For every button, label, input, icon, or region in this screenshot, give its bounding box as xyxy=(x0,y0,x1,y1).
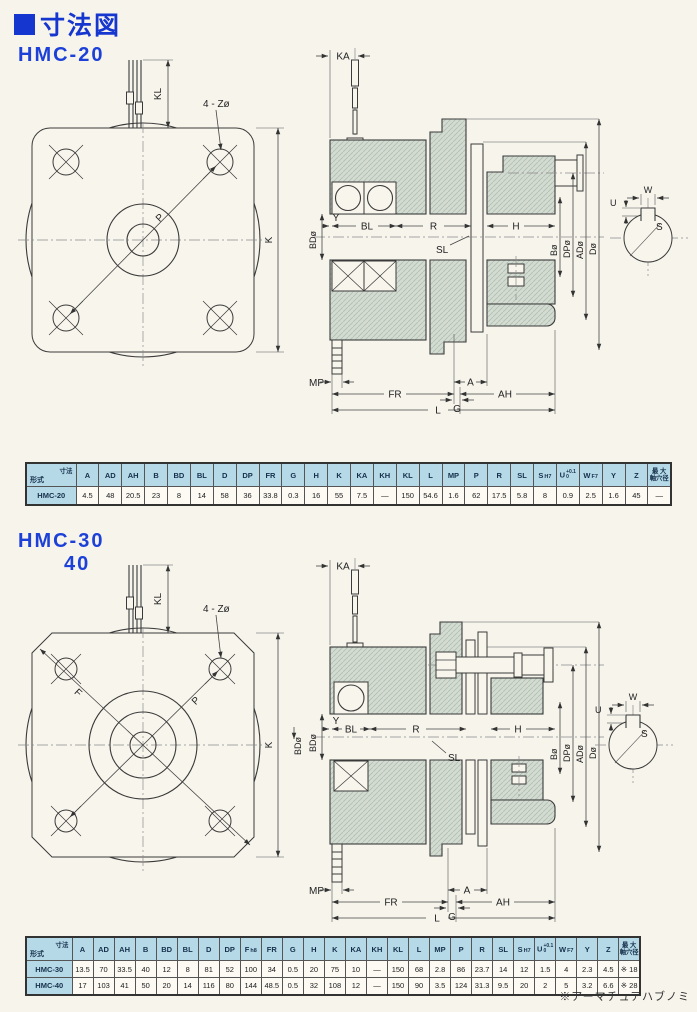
table-cell: 12 xyxy=(514,961,535,978)
table-cell: 33.8 xyxy=(259,487,282,505)
table-cell: 50 xyxy=(135,978,156,995)
hub-body xyxy=(491,678,555,824)
table-cell: 8 xyxy=(168,487,191,505)
column-header: 最 大軸穴径 xyxy=(648,463,671,487)
dim-label-g: G xyxy=(453,404,461,415)
stator-body xyxy=(330,140,426,374)
column-header: Y xyxy=(577,937,598,961)
table-cell: 75 xyxy=(324,961,345,978)
dim-label-zholes: 4 - Zø xyxy=(203,99,230,110)
dim-label-sl: SL xyxy=(448,753,461,764)
column-header: P xyxy=(451,937,472,961)
table-cell: 90 xyxy=(409,978,430,995)
column-header: Fh8 xyxy=(240,937,261,961)
column-header: DP xyxy=(219,937,240,961)
dim-label-w: W xyxy=(644,185,653,195)
dim-label-fr: FR xyxy=(384,898,397,909)
dim-label-ka: KA xyxy=(336,562,350,573)
column-header: D xyxy=(198,937,219,961)
column-header: BL xyxy=(190,463,213,487)
column-header: AD xyxy=(93,937,114,961)
dim-label-h: H xyxy=(512,222,519,233)
dim-label-r: R xyxy=(412,725,419,736)
dim-label-l: L xyxy=(434,914,440,925)
table-cell: 17.5 xyxy=(488,487,511,505)
table-cell: 7.5 xyxy=(351,487,374,505)
column-header: SL xyxy=(511,463,534,487)
kl-dimension: KL xyxy=(143,565,173,633)
dim-label-bd: BDø xyxy=(293,736,303,755)
dim-label-a: A xyxy=(464,886,471,897)
column-header: DP xyxy=(236,463,259,487)
table-cell: 20.5 xyxy=(122,487,145,505)
table-cell: 54.6 xyxy=(419,487,442,505)
column-header: BD xyxy=(156,937,177,961)
column-header: WF7 xyxy=(579,463,602,487)
dim-label-dp: DPø xyxy=(562,239,572,258)
column-header: H xyxy=(305,463,328,487)
dim-label-mp: MP xyxy=(309,886,324,897)
dim-label-bl: BL xyxy=(345,725,358,736)
column-header: FR xyxy=(261,937,282,961)
column-header: R xyxy=(488,463,511,487)
dim-label-d: Dø xyxy=(588,243,598,255)
table-cell: 23 xyxy=(145,487,168,505)
front-view-hmc30-40: KL F P 4 - Zø K BDø xyxy=(10,555,310,930)
column-header: H xyxy=(303,937,324,961)
table-cell: 12 xyxy=(345,978,366,995)
column-header: SH7 xyxy=(534,463,557,487)
table-cell: 36 xyxy=(236,487,259,505)
table-cell: 41 xyxy=(114,978,135,995)
corner-header: 寸法形式 xyxy=(26,937,72,961)
dim-label-b: Bø xyxy=(549,748,559,760)
table-cell: 80 xyxy=(219,978,240,995)
footnote: ※アーマチュアハブノミ xyxy=(500,988,690,1004)
table-cell: 3.5 xyxy=(430,978,451,995)
ka-dimension: KA xyxy=(316,560,370,645)
table-cell: 108 xyxy=(324,978,345,995)
column-header: Z xyxy=(598,937,619,961)
corner-header: 寸法形式 xyxy=(26,463,76,487)
table-cell: 4.5 xyxy=(598,961,619,978)
row-model: HMC-30 xyxy=(26,961,72,978)
row-model: HMC-20 xyxy=(26,487,76,505)
front-view-hmc20: KL P 4 - Zø K xyxy=(10,50,310,425)
table-cell: 10 xyxy=(345,961,366,978)
dim-label-ah: AH xyxy=(498,390,512,401)
dim-label-fr: FR xyxy=(388,390,401,401)
column-header: AH xyxy=(122,463,145,487)
dim-label-s: S xyxy=(641,729,648,740)
title-square-icon xyxy=(14,14,35,35)
table-cell: 2.5 xyxy=(579,487,602,505)
dim-label-k: K xyxy=(264,741,275,748)
table-cell: 1.5 xyxy=(535,961,556,978)
table-cell: 0.9 xyxy=(556,487,579,505)
table-cell: 62 xyxy=(465,487,488,505)
dim-label-ah: AH xyxy=(496,898,510,909)
table-cell: 1.6 xyxy=(442,487,465,505)
table-cell: 14 xyxy=(177,978,198,995)
column-header: 最 大軸穴径 xyxy=(619,937,640,961)
table-cell: 34 xyxy=(261,961,282,978)
table-cell: 0.5 xyxy=(282,961,303,978)
column-header: AH xyxy=(114,937,135,961)
dim-label-a: A xyxy=(467,378,474,389)
table-cell: 8 xyxy=(534,487,557,505)
page-title: 寸法図 xyxy=(14,6,121,42)
table-cell: 31.3 xyxy=(472,978,493,995)
dim-label-zholes: 4 - Zø xyxy=(203,604,230,615)
section-view-hmc20: KA BDø Y xyxy=(308,42,608,427)
column-header: U+0.10 xyxy=(535,937,556,961)
table-cell: 116 xyxy=(198,978,219,995)
table-cell: 16 xyxy=(305,487,328,505)
column-header: BL xyxy=(177,937,198,961)
table-cell: 13.5 xyxy=(72,961,93,978)
dim-label-bd: BDø xyxy=(308,230,318,249)
shaft-end-view-hmc30-40: W U S xyxy=(585,679,680,794)
table-cell: 0.3 xyxy=(282,487,305,505)
column-header: R xyxy=(472,937,493,961)
table-cell: 14 xyxy=(493,961,514,978)
table-cell: 48 xyxy=(99,487,122,505)
lead-wires xyxy=(127,565,143,633)
table-cell: 2.3 xyxy=(577,961,598,978)
ka-dimension: KA xyxy=(316,50,370,138)
stator-body xyxy=(330,647,426,882)
column-header: L xyxy=(409,937,430,961)
column-header: SH7 xyxy=(514,937,535,961)
column-header: MP xyxy=(430,937,451,961)
column-header: SL xyxy=(493,937,514,961)
section-view-hmc30-40: KA xyxy=(308,552,608,937)
dim-label-s: S xyxy=(656,222,663,233)
kl-dimension: KL xyxy=(143,60,173,128)
column-header: FR xyxy=(259,463,282,487)
table-cell: 2.8 xyxy=(430,961,451,978)
lead-wires xyxy=(127,60,143,128)
column-header: KH xyxy=(366,937,387,961)
dim-label-b: Bø xyxy=(549,244,559,256)
dim-label-kl: KL xyxy=(153,87,164,100)
dim-label-kl: KL xyxy=(153,592,164,605)
table-cell: 0.5 xyxy=(282,978,303,995)
table-cell: 4.5 xyxy=(76,487,99,505)
dim-label-bl: BL xyxy=(361,222,374,233)
table-cell: 144 xyxy=(240,978,261,995)
table-cell: 58 xyxy=(213,487,236,505)
table-cell: 32 xyxy=(303,978,324,995)
page-title-text: 寸法図 xyxy=(40,6,121,42)
column-header: B xyxy=(135,937,156,961)
table-cell: 124 xyxy=(451,978,472,995)
bd-callout: BDø xyxy=(293,727,303,755)
column-header: G xyxy=(282,463,305,487)
column-header: WF7 xyxy=(556,937,577,961)
table-cell: 1.6 xyxy=(602,487,625,505)
table-cell: 20 xyxy=(303,961,324,978)
column-header: KA xyxy=(351,463,374,487)
table-cell: 20 xyxy=(156,978,177,995)
column-header: Y xyxy=(602,463,625,487)
column-header: G xyxy=(282,937,303,961)
dim-label-mp: MP xyxy=(309,378,324,389)
table-cell: — xyxy=(366,961,387,978)
column-header: MP xyxy=(442,463,465,487)
clamp-bolt xyxy=(428,648,604,682)
column-header: P xyxy=(465,463,488,487)
table-cell: 4 xyxy=(556,961,577,978)
table-cell: ※ 18 xyxy=(619,961,640,978)
table-cell: 12 xyxy=(156,961,177,978)
table-cell: 68 xyxy=(409,961,430,978)
column-header: Z xyxy=(625,463,648,487)
rotor-body xyxy=(430,119,483,354)
column-header: AD xyxy=(99,463,122,487)
catalog-page: { "page": { "title": "寸法図", "footnote": … xyxy=(0,0,697,1012)
table-cell: — xyxy=(373,487,396,505)
table-cell: 55 xyxy=(328,487,351,505)
column-header: A xyxy=(72,937,93,961)
dim-label-u: U xyxy=(610,198,617,208)
mid-band-dimensions: BDø Y BL R H SL xyxy=(308,714,555,764)
dim-label-dp: DPø xyxy=(562,743,572,762)
table-cell: 48.5 xyxy=(261,978,282,995)
table-cell: 17 xyxy=(72,978,93,995)
dim-label-u: U xyxy=(595,705,602,715)
dim-label-l: L xyxy=(435,406,441,417)
dim-label-y: Y xyxy=(333,716,340,727)
table-cell: 81 xyxy=(198,961,219,978)
column-header: KH xyxy=(373,463,396,487)
table-cell: — xyxy=(648,487,671,505)
mid-band-dimensions: BDø Y BL R H SL xyxy=(308,213,555,260)
table-cell: 23.7 xyxy=(472,961,493,978)
column-header: B xyxy=(145,463,168,487)
column-header: KL xyxy=(396,463,419,487)
terminal-pin xyxy=(347,558,363,656)
hub-body xyxy=(487,155,604,326)
table-cell: 150 xyxy=(387,978,408,995)
dim-label-ka: KA xyxy=(336,52,350,63)
column-header: K xyxy=(328,463,351,487)
table-cell: 8 xyxy=(177,961,198,978)
table-cell: 14 xyxy=(190,487,213,505)
dim-label-w: W xyxy=(629,692,638,702)
dim-label-ad: ADø xyxy=(575,240,585,259)
dimension-table-hmc20: 寸法形式AADAHBBDBLDDPFRGHKKAKHKLLMPPRSLSH7U+… xyxy=(25,462,672,506)
column-header: D xyxy=(213,463,236,487)
table-cell: 40 xyxy=(135,961,156,978)
table-cell: 86 xyxy=(451,961,472,978)
row-model: HMC-40 xyxy=(26,978,72,995)
table-cell: 5.8 xyxy=(511,487,534,505)
column-header: A xyxy=(76,463,99,487)
dim-label-h: H xyxy=(514,725,521,736)
column-header: U+0.10 xyxy=(556,463,579,487)
table-cell: 45 xyxy=(625,487,648,505)
shaft-end-view-hmc20: W U S xyxy=(600,172,695,287)
table-cell: 150 xyxy=(396,487,419,505)
dim-label-ad: ADø xyxy=(575,744,585,763)
table-cell: 100 xyxy=(240,961,261,978)
dim-label-r: R xyxy=(430,222,437,233)
dim-label-g: G xyxy=(448,912,456,923)
dim-label-bd: BDø xyxy=(308,733,318,752)
terminal-pin xyxy=(347,48,363,150)
table-cell: — xyxy=(366,978,387,995)
table-cell: 70 xyxy=(93,961,114,978)
dim-label-k: K xyxy=(264,236,275,243)
table-cell: 103 xyxy=(93,978,114,995)
table-cell: 150 xyxy=(387,961,408,978)
column-header: K xyxy=(324,937,345,961)
table-cell: 52 xyxy=(219,961,240,978)
column-header: KL xyxy=(387,937,408,961)
dim-label-sl: SL xyxy=(436,245,449,256)
column-header: BD xyxy=(168,463,191,487)
dim-label-y: Y xyxy=(333,213,340,224)
table-cell: 33.5 xyxy=(114,961,135,978)
column-header: KA xyxy=(345,937,366,961)
dimension-table-hmc30-40: 寸法形式AADAHBBDBLDDPFh8FRGHKKAKHKLLMPPRSLSH… xyxy=(25,936,641,996)
column-header: L xyxy=(419,463,442,487)
